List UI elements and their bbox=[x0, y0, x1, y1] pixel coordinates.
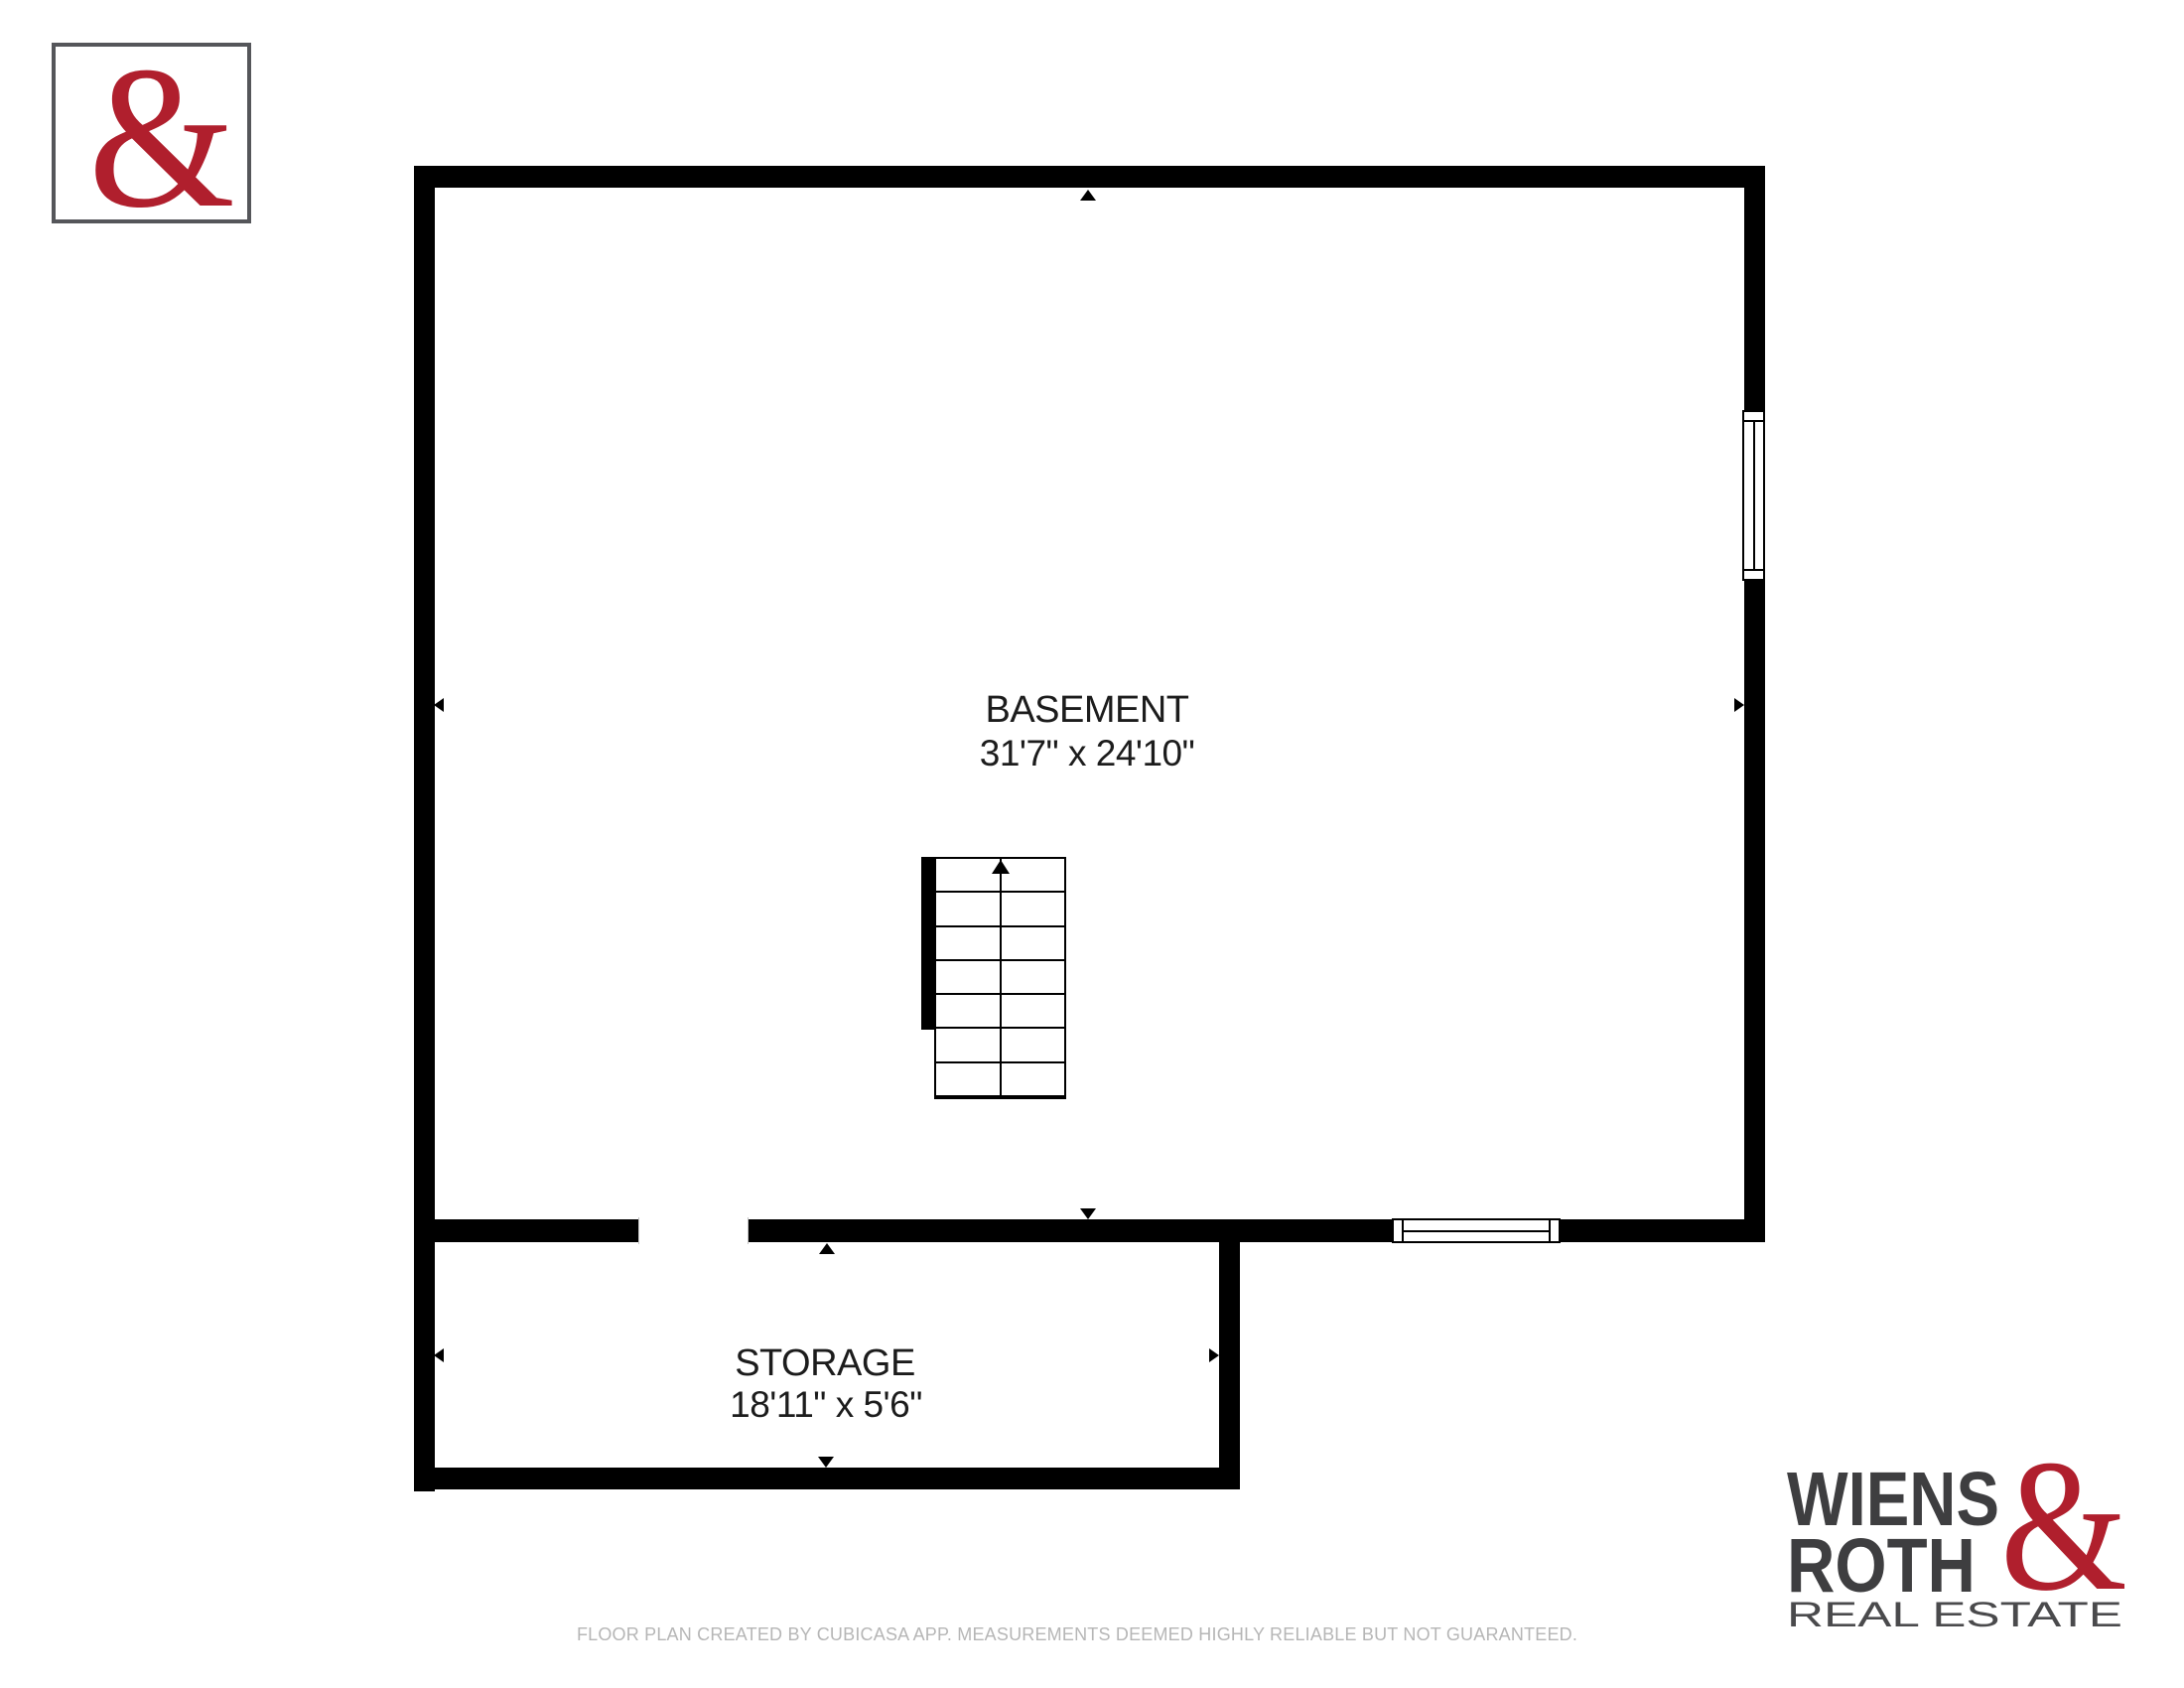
storage-right-wall bbox=[1219, 1219, 1240, 1489]
basement-top-wall bbox=[414, 166, 1765, 188]
basement-right-wall bbox=[1744, 166, 1765, 1242]
door-opening bbox=[638, 1217, 749, 1244]
wiens-roth-logo-graphic: & WIENS ROTH REAL ESTATE bbox=[1783, 1456, 2140, 1634]
wiens-roth-logo: & WIENS ROTH REAL ESTATE bbox=[1783, 1456, 2140, 1634]
dimension-marker-left-icon bbox=[434, 698, 444, 712]
disclaimer-text: FLOOR PLAN CREATED BY CUBICASA APP. MEAS… bbox=[577, 1624, 1577, 1645]
window-center-line bbox=[1404, 1230, 1549, 1232]
dimension-marker-left-icon bbox=[434, 1348, 444, 1362]
dimension-marker-down-icon bbox=[818, 1457, 834, 1468]
staircase-divider-line bbox=[1000, 859, 1002, 1097]
basement-room-dimensions: 31'7" x 24'10" bbox=[980, 733, 1195, 774]
dimension-marker-right-icon bbox=[1209, 1348, 1219, 1362]
storage-room-label: STORAGE bbox=[735, 1342, 915, 1385]
stairs-up-arrow-icon bbox=[992, 860, 1010, 874]
floorplan-page: & BASEMENT 31'7" x 24'1 bbox=[0, 0, 2184, 1688]
dimension-marker-right-icon bbox=[1734, 698, 1744, 712]
window-frame-line bbox=[1744, 569, 1763, 571]
staircase-side-wall bbox=[921, 857, 934, 1030]
basement-bottom-wall bbox=[414, 1219, 1765, 1242]
window-frame-line bbox=[1549, 1220, 1551, 1241]
dimension-marker-up-icon bbox=[819, 1243, 835, 1254]
storage-room-dimensions: 18'11" x 5'6" bbox=[730, 1384, 922, 1426]
logo-real-estate-text: REAL ESTATE bbox=[1787, 1596, 2122, 1634]
brand-ampersand: & bbox=[88, 47, 235, 219]
window-bottom-wall bbox=[1392, 1218, 1561, 1243]
dimension-marker-down-icon bbox=[1080, 1208, 1096, 1219]
staircase bbox=[934, 857, 1066, 1099]
storage-bottom-wall bbox=[414, 1468, 1240, 1489]
left-wall bbox=[414, 166, 435, 1491]
basement-room-label: BASEMENT bbox=[985, 689, 1188, 732]
dimension-marker-up-icon bbox=[1080, 190, 1096, 201]
window-center-line bbox=[1753, 422, 1755, 569]
window-right-wall bbox=[1742, 410, 1765, 581]
brand-logo-box: & bbox=[52, 43, 251, 223]
ampersand-icon: & bbox=[56, 47, 247, 219]
